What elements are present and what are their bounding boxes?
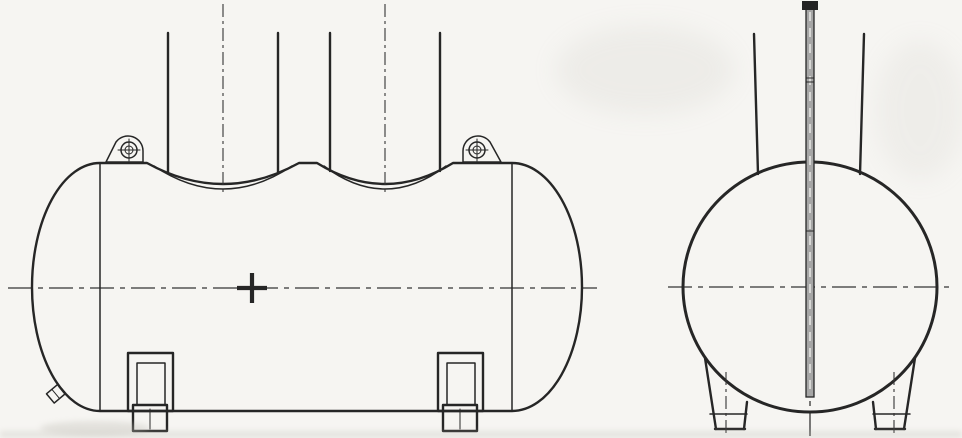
support-leg-right	[873, 358, 915, 433]
support-1-web	[137, 363, 165, 405]
saddle-support-1	[128, 353, 173, 431]
center-mark	[237, 273, 267, 303]
scan-noise-2	[875, 40, 962, 180]
front-view	[8, 4, 597, 431]
saddle-support-2	[438, 353, 483, 431]
leg-right-inner	[873, 402, 876, 429]
support-2-bracket	[438, 353, 483, 411]
dip-tube-cap	[802, 1, 818, 10]
scan-smudge-bottom	[0, 431, 962, 438]
manway-1	[168, 4, 278, 196]
tank-shell-outline	[32, 163, 582, 411]
drain-nozzle	[46, 384, 65, 403]
end-neck-right	[860, 34, 864, 174]
drain-nozzle-face	[52, 389, 60, 398]
leg-left-inner	[744, 402, 747, 429]
drain-nozzle-body	[46, 384, 65, 403]
support-leg-left	[705, 358, 747, 433]
end-neck-left	[754, 34, 758, 174]
internal-dip-tube	[802, 1, 818, 397]
manway-2	[330, 4, 440, 196]
lifting-lug-right	[463, 136, 501, 162]
scan-artifacts	[0, 25, 962, 438]
tank-drawing	[0, 0, 962, 438]
support-1-bracket	[128, 353, 173, 411]
support-2-web	[447, 363, 475, 405]
lifting-lug-left	[106, 136, 143, 162]
scan-smudge-bottom-left	[40, 421, 150, 435]
drawing-canvas	[0, 0, 962, 438]
scan-noise-1	[555, 25, 735, 115]
